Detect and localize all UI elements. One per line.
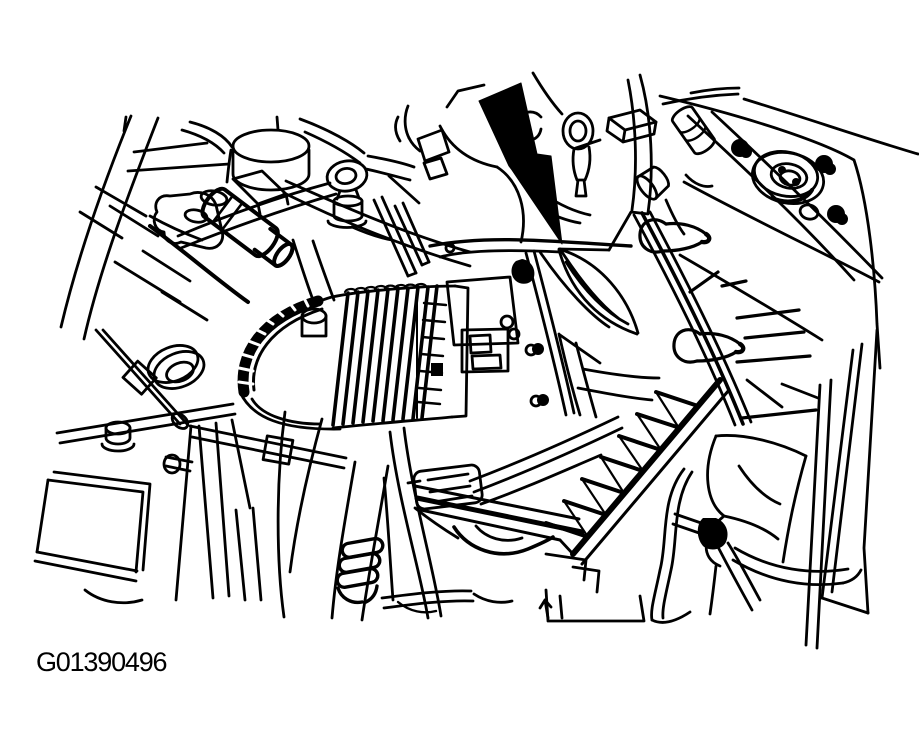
svg-text:G01390496: G01390496 [36,647,167,677]
